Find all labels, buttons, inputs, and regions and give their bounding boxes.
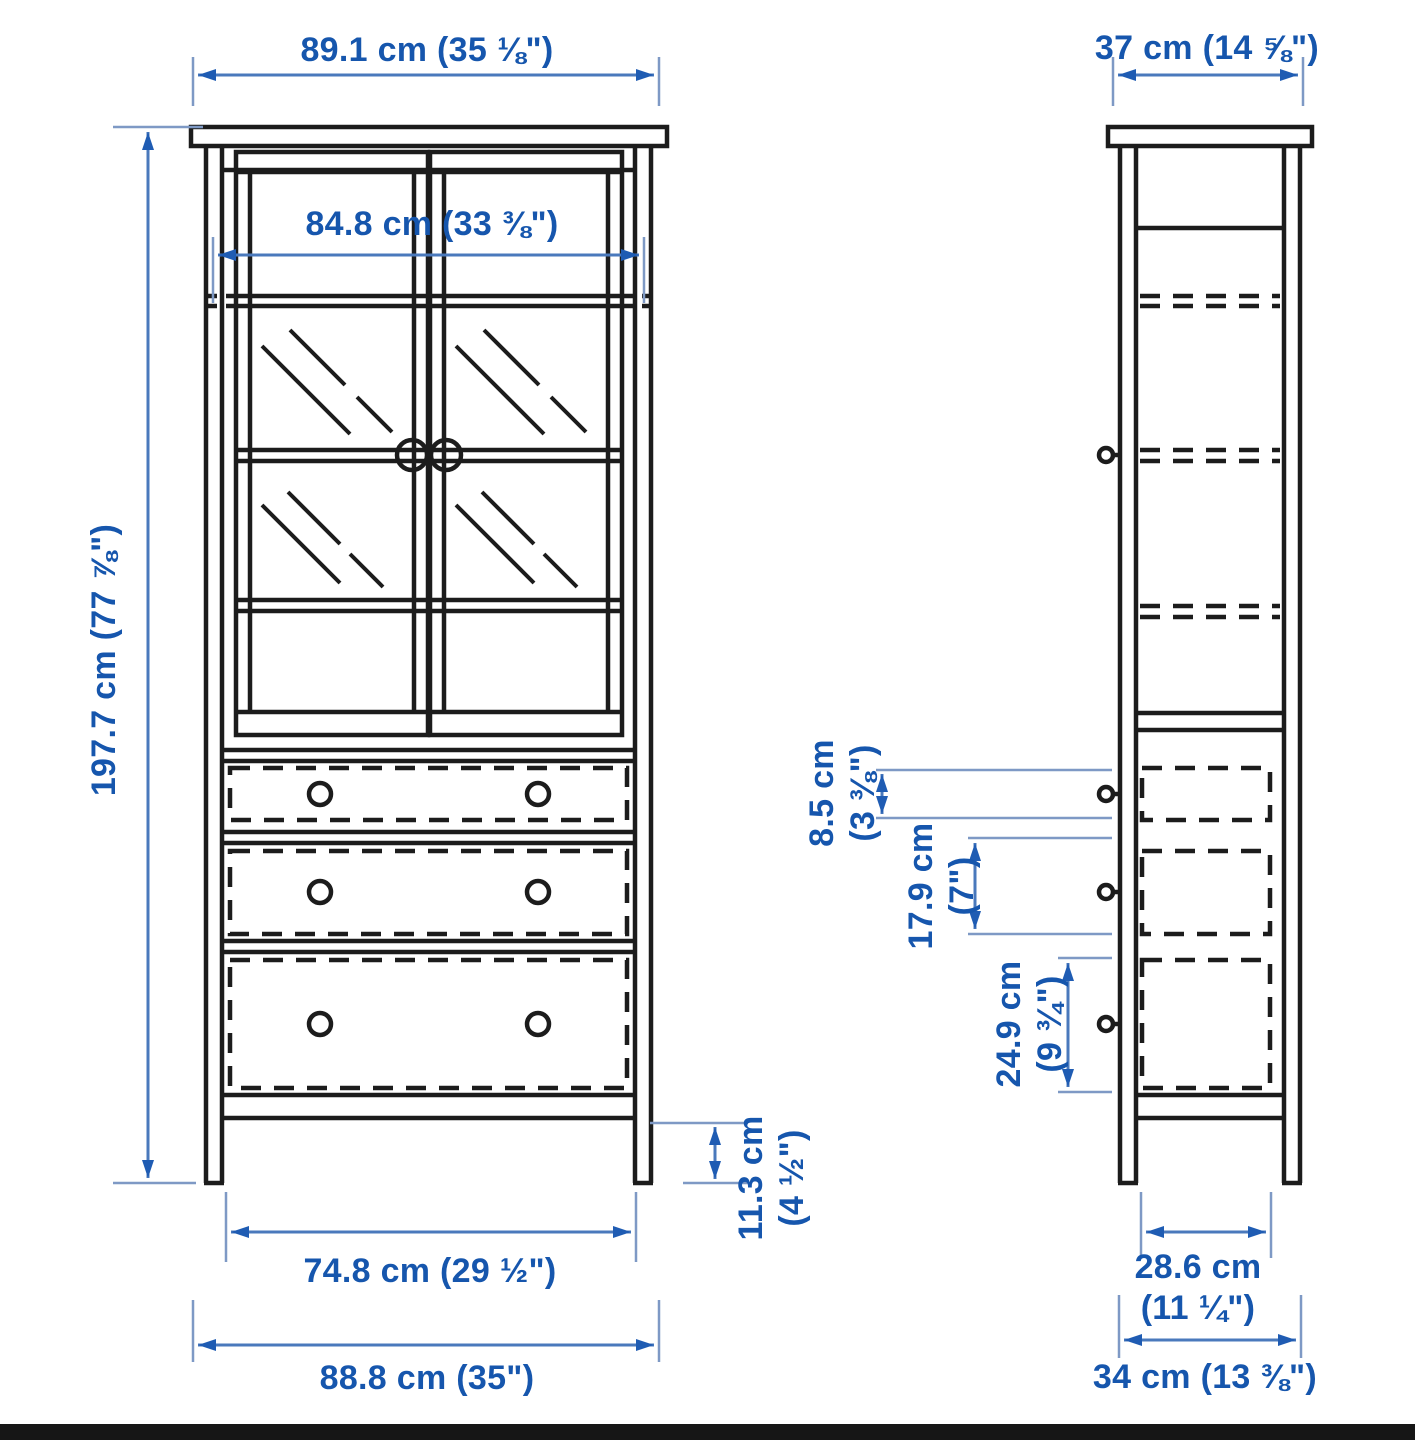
drawer-1-front <box>230 768 627 820</box>
footer-bar <box>0 1424 1415 1440</box>
dim-side-middle-drawer-height-label: 17.9 cm (7") <box>900 791 984 981</box>
cabinet-front-view <box>191 127 667 1183</box>
dim-front-height-label: 197.7 cm (77 ⅞") <box>81 380 127 940</box>
glass-reflection-marks <box>262 330 586 587</box>
drawer-2-front <box>230 851 627 934</box>
dimension-lines <box>113 57 1303 1362</box>
dim-side-top-drawer-height-label: 8.5 cm (3 ⅜") <box>801 708 885 878</box>
dim-front-drawer-width-label: 74.8 cm (29 ½") <box>190 1250 670 1292</box>
dim-front-inner-width-label: 84.8 cm (33 ⅜") <box>192 203 672 245</box>
dim-side-top-depth-label: 37 cm (14 ⅝") <box>1037 27 1377 69</box>
dim-front-plinth-height-label: 11.3 cm (4 ½") <box>730 1078 814 1278</box>
side-top-board <box>1108 127 1312 146</box>
dim-front-base-width-label: 88.8 cm (35") <box>187 1357 667 1399</box>
dim-side-base-depth-label: 34 cm (13 ⅜") <box>1035 1356 1375 1398</box>
front-drawers <box>222 750 635 1118</box>
front-top-board <box>191 127 667 146</box>
dim-front-top-width-label: 89.1 cm (35 ⅛") <box>187 29 667 71</box>
dim-side-inner-depth-label: 28.6 cm (11 ¼") <box>1068 1246 1328 1330</box>
dim-side-bottom-drawer-height-label: 24.9 cm (9 ¾") <box>988 914 1072 1134</box>
cabinet-side-view <box>1099 127 1312 1183</box>
drawer-3-front <box>230 960 627 1088</box>
furniture-dimension-diagram: 89.1 cm (35 ⅛") 84.8 cm (33 ⅜") 197.7 cm… <box>0 0 1415 1440</box>
